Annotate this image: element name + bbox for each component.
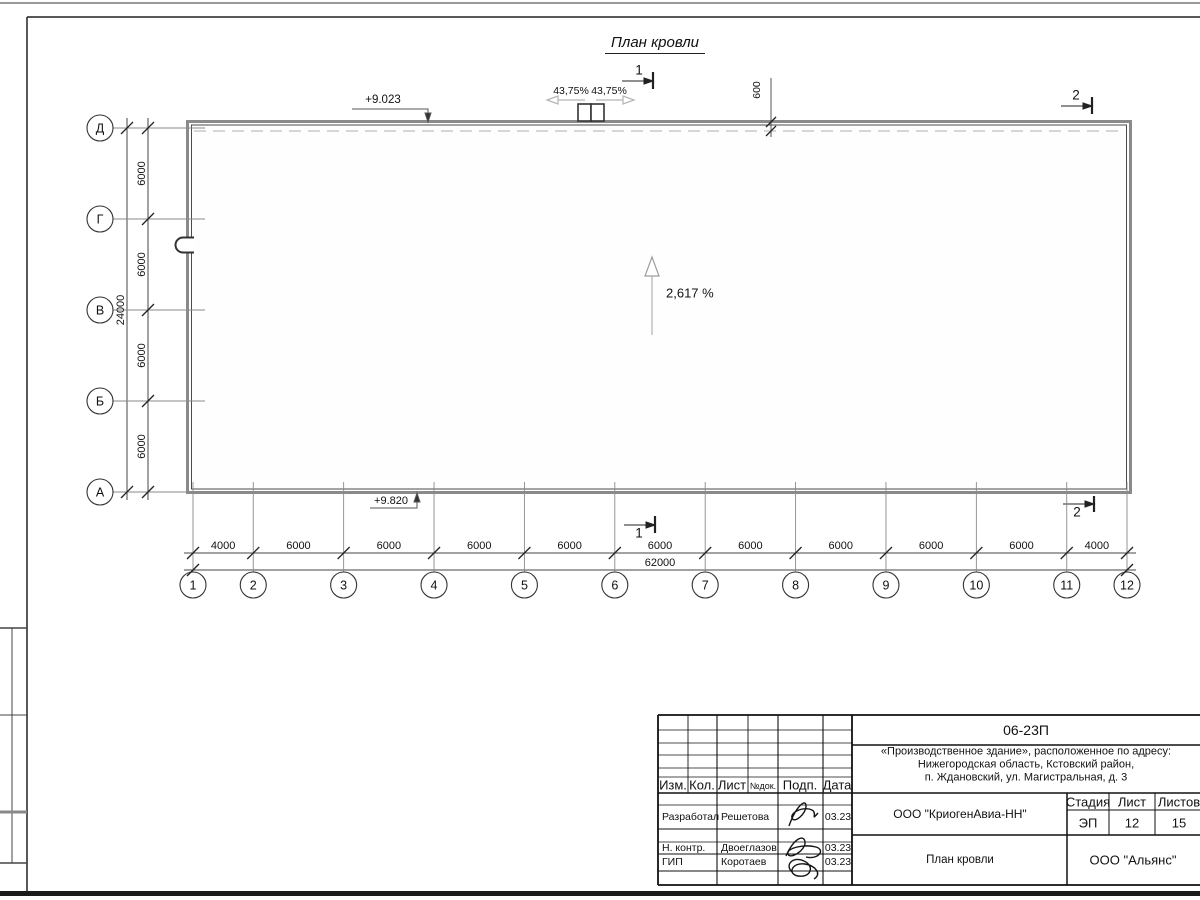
grid-bubble-label: 12 xyxy=(1120,579,1134,593)
tb-project-code: 06-23П xyxy=(1003,722,1049,738)
axis-bubble-label: Г xyxy=(97,213,104,227)
grid-bubble-label: 7 xyxy=(702,579,709,593)
col-dim-label: 6000 xyxy=(377,540,401,552)
section-mark-2-bottom-label: 2 xyxy=(1073,505,1081,520)
grid-bubble-label: 10 xyxy=(969,579,983,593)
tb-stage-label: Стадия xyxy=(1066,795,1110,810)
parapet-slope-right-label: 43,75% xyxy=(591,85,627,97)
tb-client: ООО "КриогенАвиа-НН" xyxy=(893,807,1026,821)
col-dim-label: 6000 xyxy=(738,540,762,552)
tb-name-1: Двоеглазов xyxy=(721,842,777,854)
tb-role-2: ГИП xyxy=(662,856,683,868)
axis-bubble-label: Д xyxy=(96,122,105,136)
row-dim-label: 6000 xyxy=(136,252,148,276)
axis-bubble-label: В xyxy=(96,304,104,318)
tb-date-2: 03.23 xyxy=(825,856,851,868)
tb-name-0: Решетова xyxy=(721,811,769,823)
col-dim-label: 6000 xyxy=(648,540,672,552)
grid-bubble-label: 6 xyxy=(611,579,618,593)
col-dim-label: 4000 xyxy=(1085,540,1109,552)
tb-header-izm: Изм. xyxy=(659,778,687,793)
col-dim-label: 6000 xyxy=(1009,540,1033,552)
tb-sheets-value: 15 xyxy=(1172,816,1186,831)
tb-project-line-3: п. Ждановский, ул. Магистральная, д. 3 xyxy=(925,772,1128,785)
tb-date-1: 03.23 xyxy=(825,842,851,854)
row-dim-label: 6000 xyxy=(136,161,148,185)
parapet-slope-left-label: 43,75% xyxy=(553,85,589,97)
tb-date-0: 03.23 xyxy=(825,811,851,823)
tb-project-line-1: «Производственное здание», расположенное… xyxy=(881,746,1171,759)
drawing-sheet: 1234567891011124000600060006000600060006… xyxy=(0,0,1200,900)
tb-header-data: Дата xyxy=(823,778,852,793)
total-width-label: 62000 xyxy=(645,557,676,569)
col-dim-label: 6000 xyxy=(557,540,581,552)
row-dim-label: 6000 xyxy=(136,343,148,367)
tb-sheets-label: Листов xyxy=(1158,795,1200,810)
drawing-title: План кровли xyxy=(605,34,705,54)
parapet-width-label: 600 xyxy=(751,81,763,99)
grid-bubble-label: 3 xyxy=(340,579,347,593)
tb-project-line-2: Нижегородская область, Кстовский район, xyxy=(918,759,1134,772)
row-dim-label: 6000 xyxy=(136,434,148,458)
col-dim-label: 4000 xyxy=(211,540,235,552)
tb-stage-value: ЭП xyxy=(1079,816,1098,831)
tb-role-1: Н. контр. xyxy=(662,842,705,854)
col-dim-label: 6000 xyxy=(467,540,491,552)
tb-contractor: ООО "Альянс" xyxy=(1090,853,1177,868)
tb-name-2: Коротаев xyxy=(721,856,766,868)
tb-sheet-value: 12 xyxy=(1125,816,1139,831)
tb-header-ndok: №док. xyxy=(750,781,776,791)
col-dim-label: 6000 xyxy=(286,540,310,552)
axis-bubble-label: Б xyxy=(96,395,104,409)
grid-bubble-label: 4 xyxy=(431,579,438,593)
elevation-top-label: +9.023 xyxy=(365,94,401,106)
section-mark-2-top-label: 2 xyxy=(1072,88,1080,103)
grid-bubble-label: 8 xyxy=(792,579,799,593)
elevation-bottom-label: +9.820 xyxy=(374,495,408,507)
main-slope-label: 2,617 % xyxy=(666,286,714,301)
axis-bubble-label: А xyxy=(96,486,105,500)
section-mark-1-bottom-label: 1 xyxy=(635,526,643,541)
grid-bubble-label: 2 xyxy=(250,579,257,593)
section-mark-1-top-label: 1 xyxy=(635,63,643,78)
tb-header-kol: Кол. xyxy=(689,778,715,793)
tb-sheet-name: План кровли xyxy=(926,854,994,866)
grid-bubble-label: 5 xyxy=(521,579,528,593)
grid-bubble-label: 1 xyxy=(190,579,197,593)
tb-header-podp: Подп. xyxy=(783,778,818,793)
col-dim-label: 6000 xyxy=(829,540,853,552)
tb-role-0: Разработал xyxy=(662,811,719,823)
tb-header-list: Лист xyxy=(718,778,746,793)
grid-bubble-label: 9 xyxy=(882,579,889,593)
total-height-label: 24000 xyxy=(115,295,127,326)
grid-bubble-label: 11 xyxy=(1060,579,1073,593)
tb-sheet-label: Лист xyxy=(1118,795,1146,810)
col-dim-label: 6000 xyxy=(919,540,943,552)
